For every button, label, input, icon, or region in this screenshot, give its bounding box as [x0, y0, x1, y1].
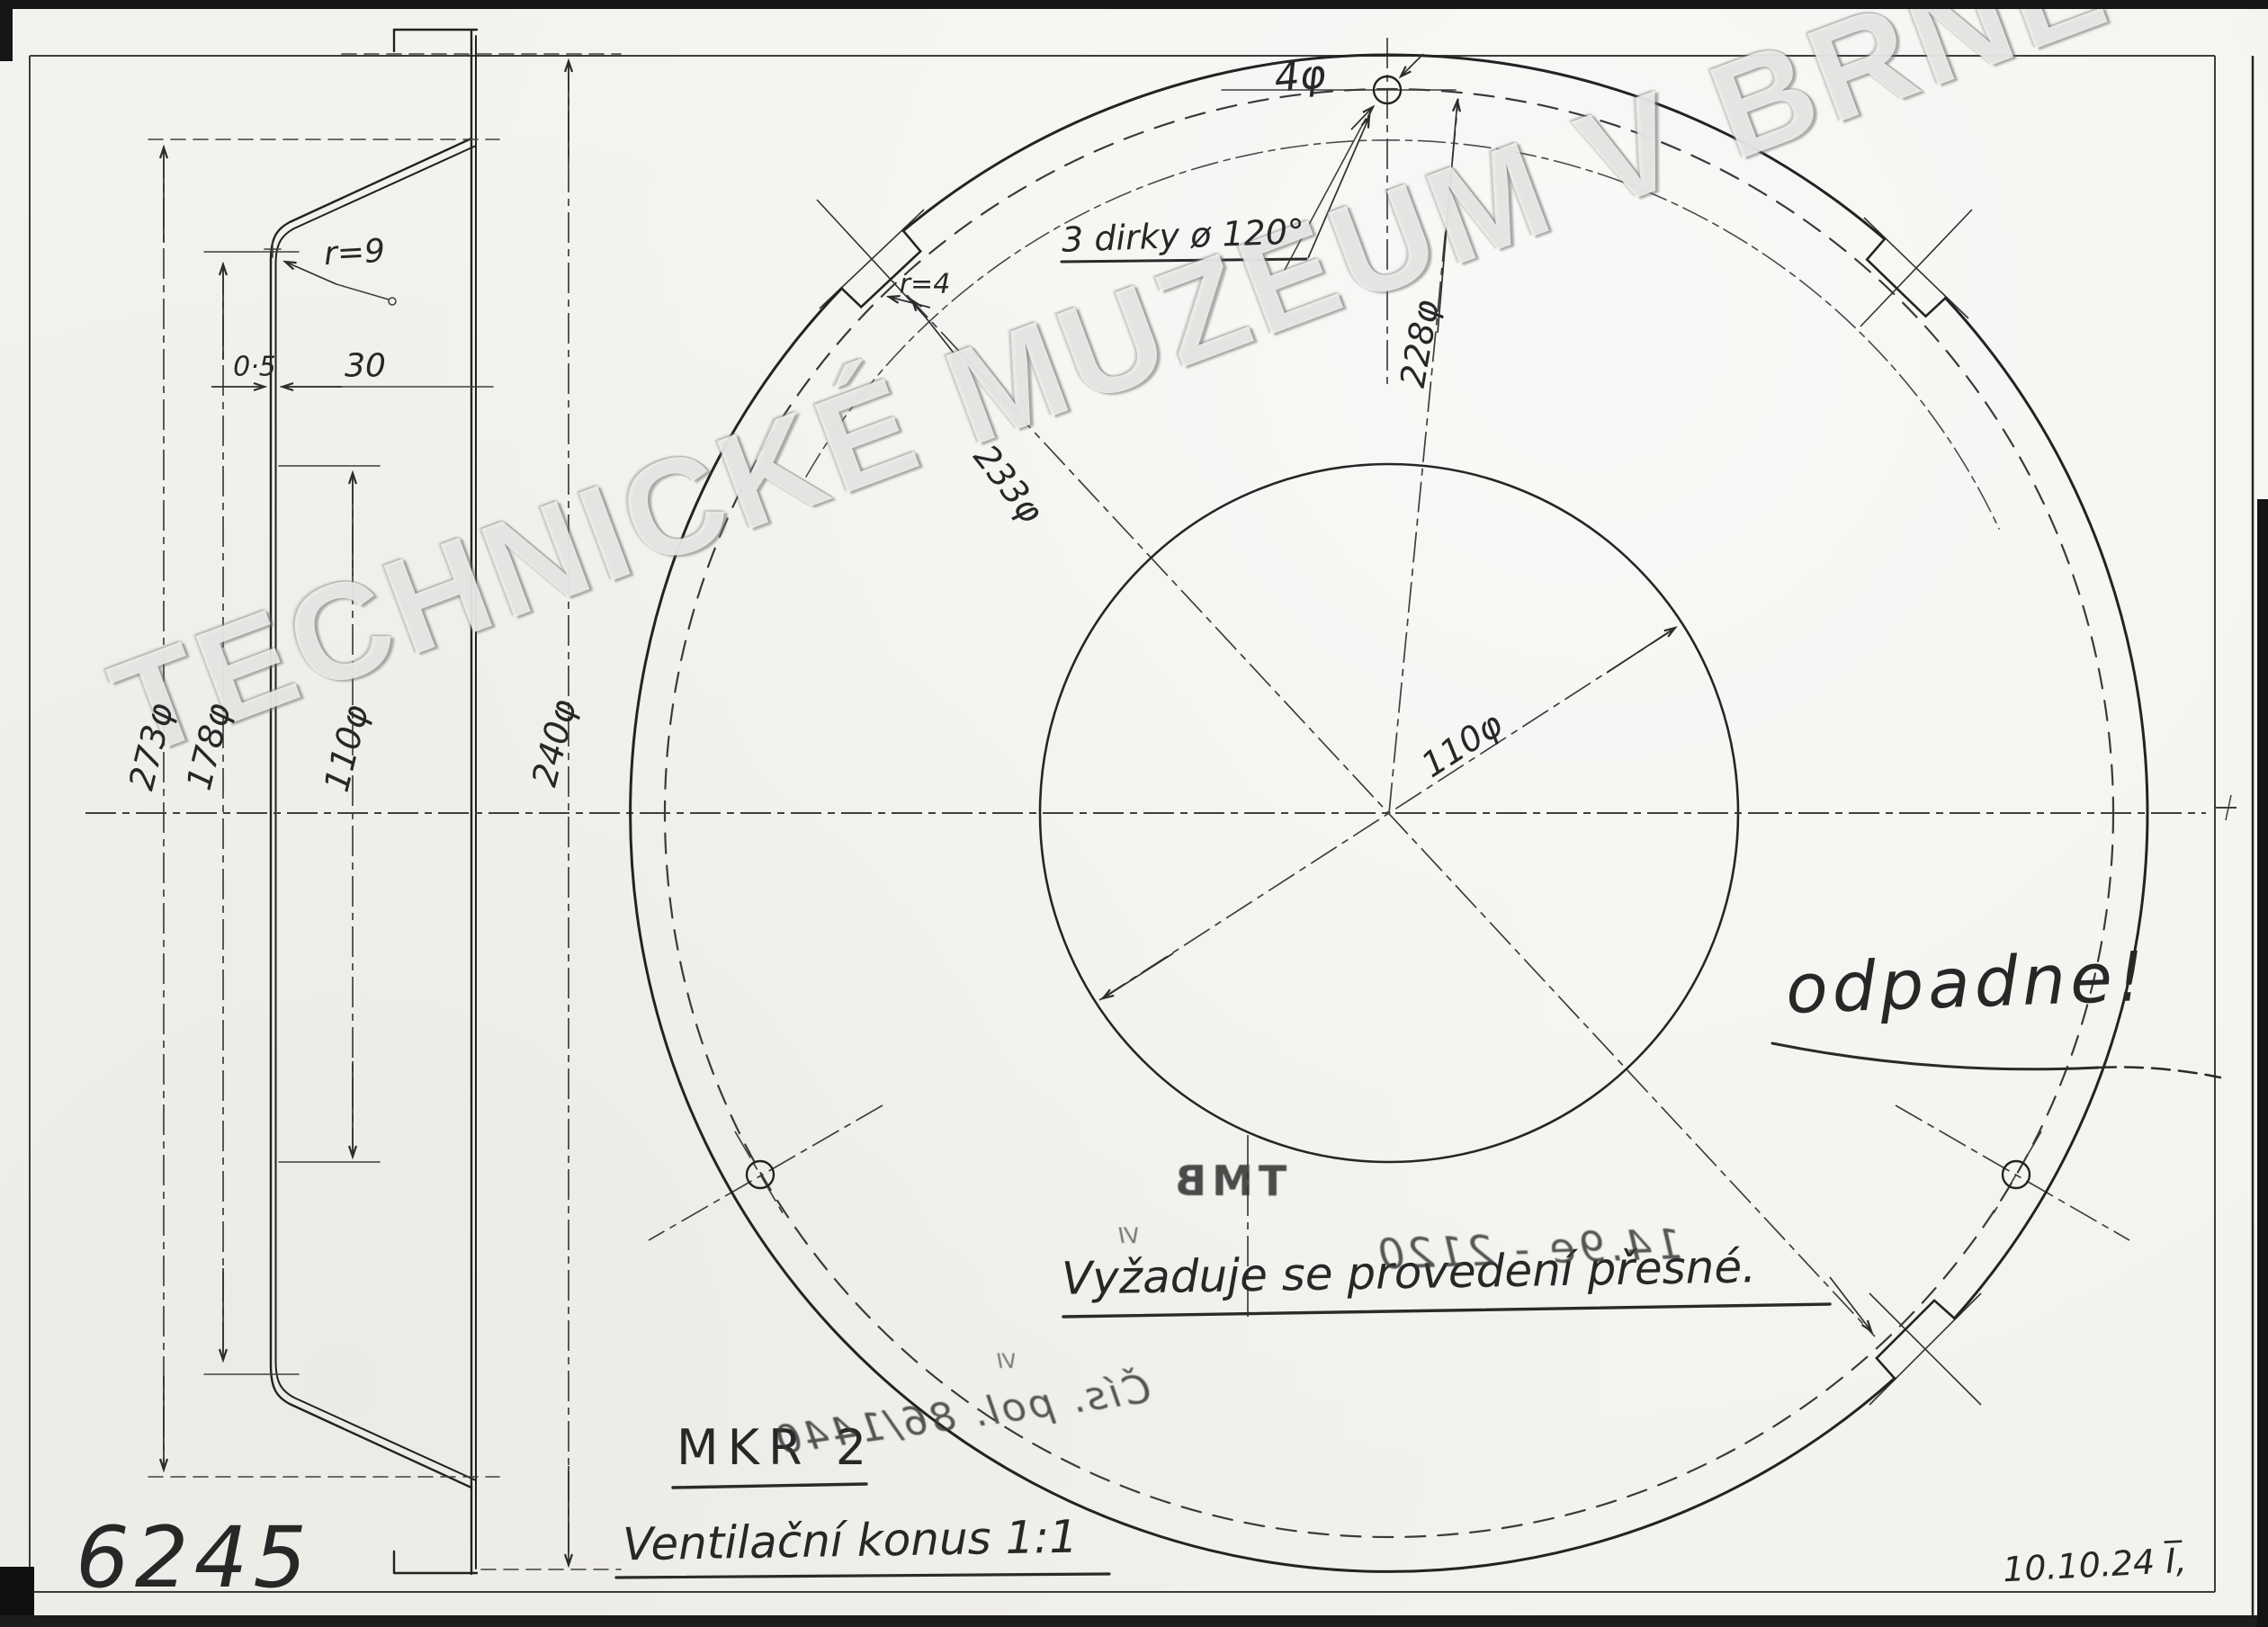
underline-strokes	[616, 259, 2220, 1578]
scan-edge-left	[0, 0, 13, 61]
thickness-label: 0·5	[233, 352, 276, 383]
center-lines	[85, 38, 2206, 1565]
flange-width-label: 30	[345, 348, 386, 385]
extension-lines	[148, 54, 1456, 1569]
stamp-vi-upper: VI	[1118, 1223, 1140, 1248]
scan-edge-top	[0, 0, 2268, 9]
holes-note-label: 3 dirky ø 120°	[1061, 211, 1304, 259]
corner-radius-label: r=9	[323, 233, 386, 273]
dimension-arrows	[164, 54, 1871, 1565]
scan-edge-bottom	[0, 1615, 2268, 1627]
stamp-vi-lower: VI	[997, 1351, 1017, 1373]
notch-radius-label: r=4	[900, 269, 951, 300]
odpadne-note: odpadne!	[1785, 936, 2150, 1029]
scan-edge-right	[2257, 499, 2268, 1627]
drawing-number: 6245	[76, 1509, 312, 1607]
bolt-hole-lower-left	[747, 1161, 774, 1188]
tmb-stamp: TMB	[1170, 1157, 1286, 1205]
title-label: Ventilační konus 1:1	[623, 1511, 1079, 1571]
hole-dia-label: 4φ	[1272, 51, 1327, 102]
scanned-drawing-sheet: TECHNICKÉ MUZEUM V BRNĚ r=9 0·5 30 273φ …	[0, 0, 2268, 1627]
